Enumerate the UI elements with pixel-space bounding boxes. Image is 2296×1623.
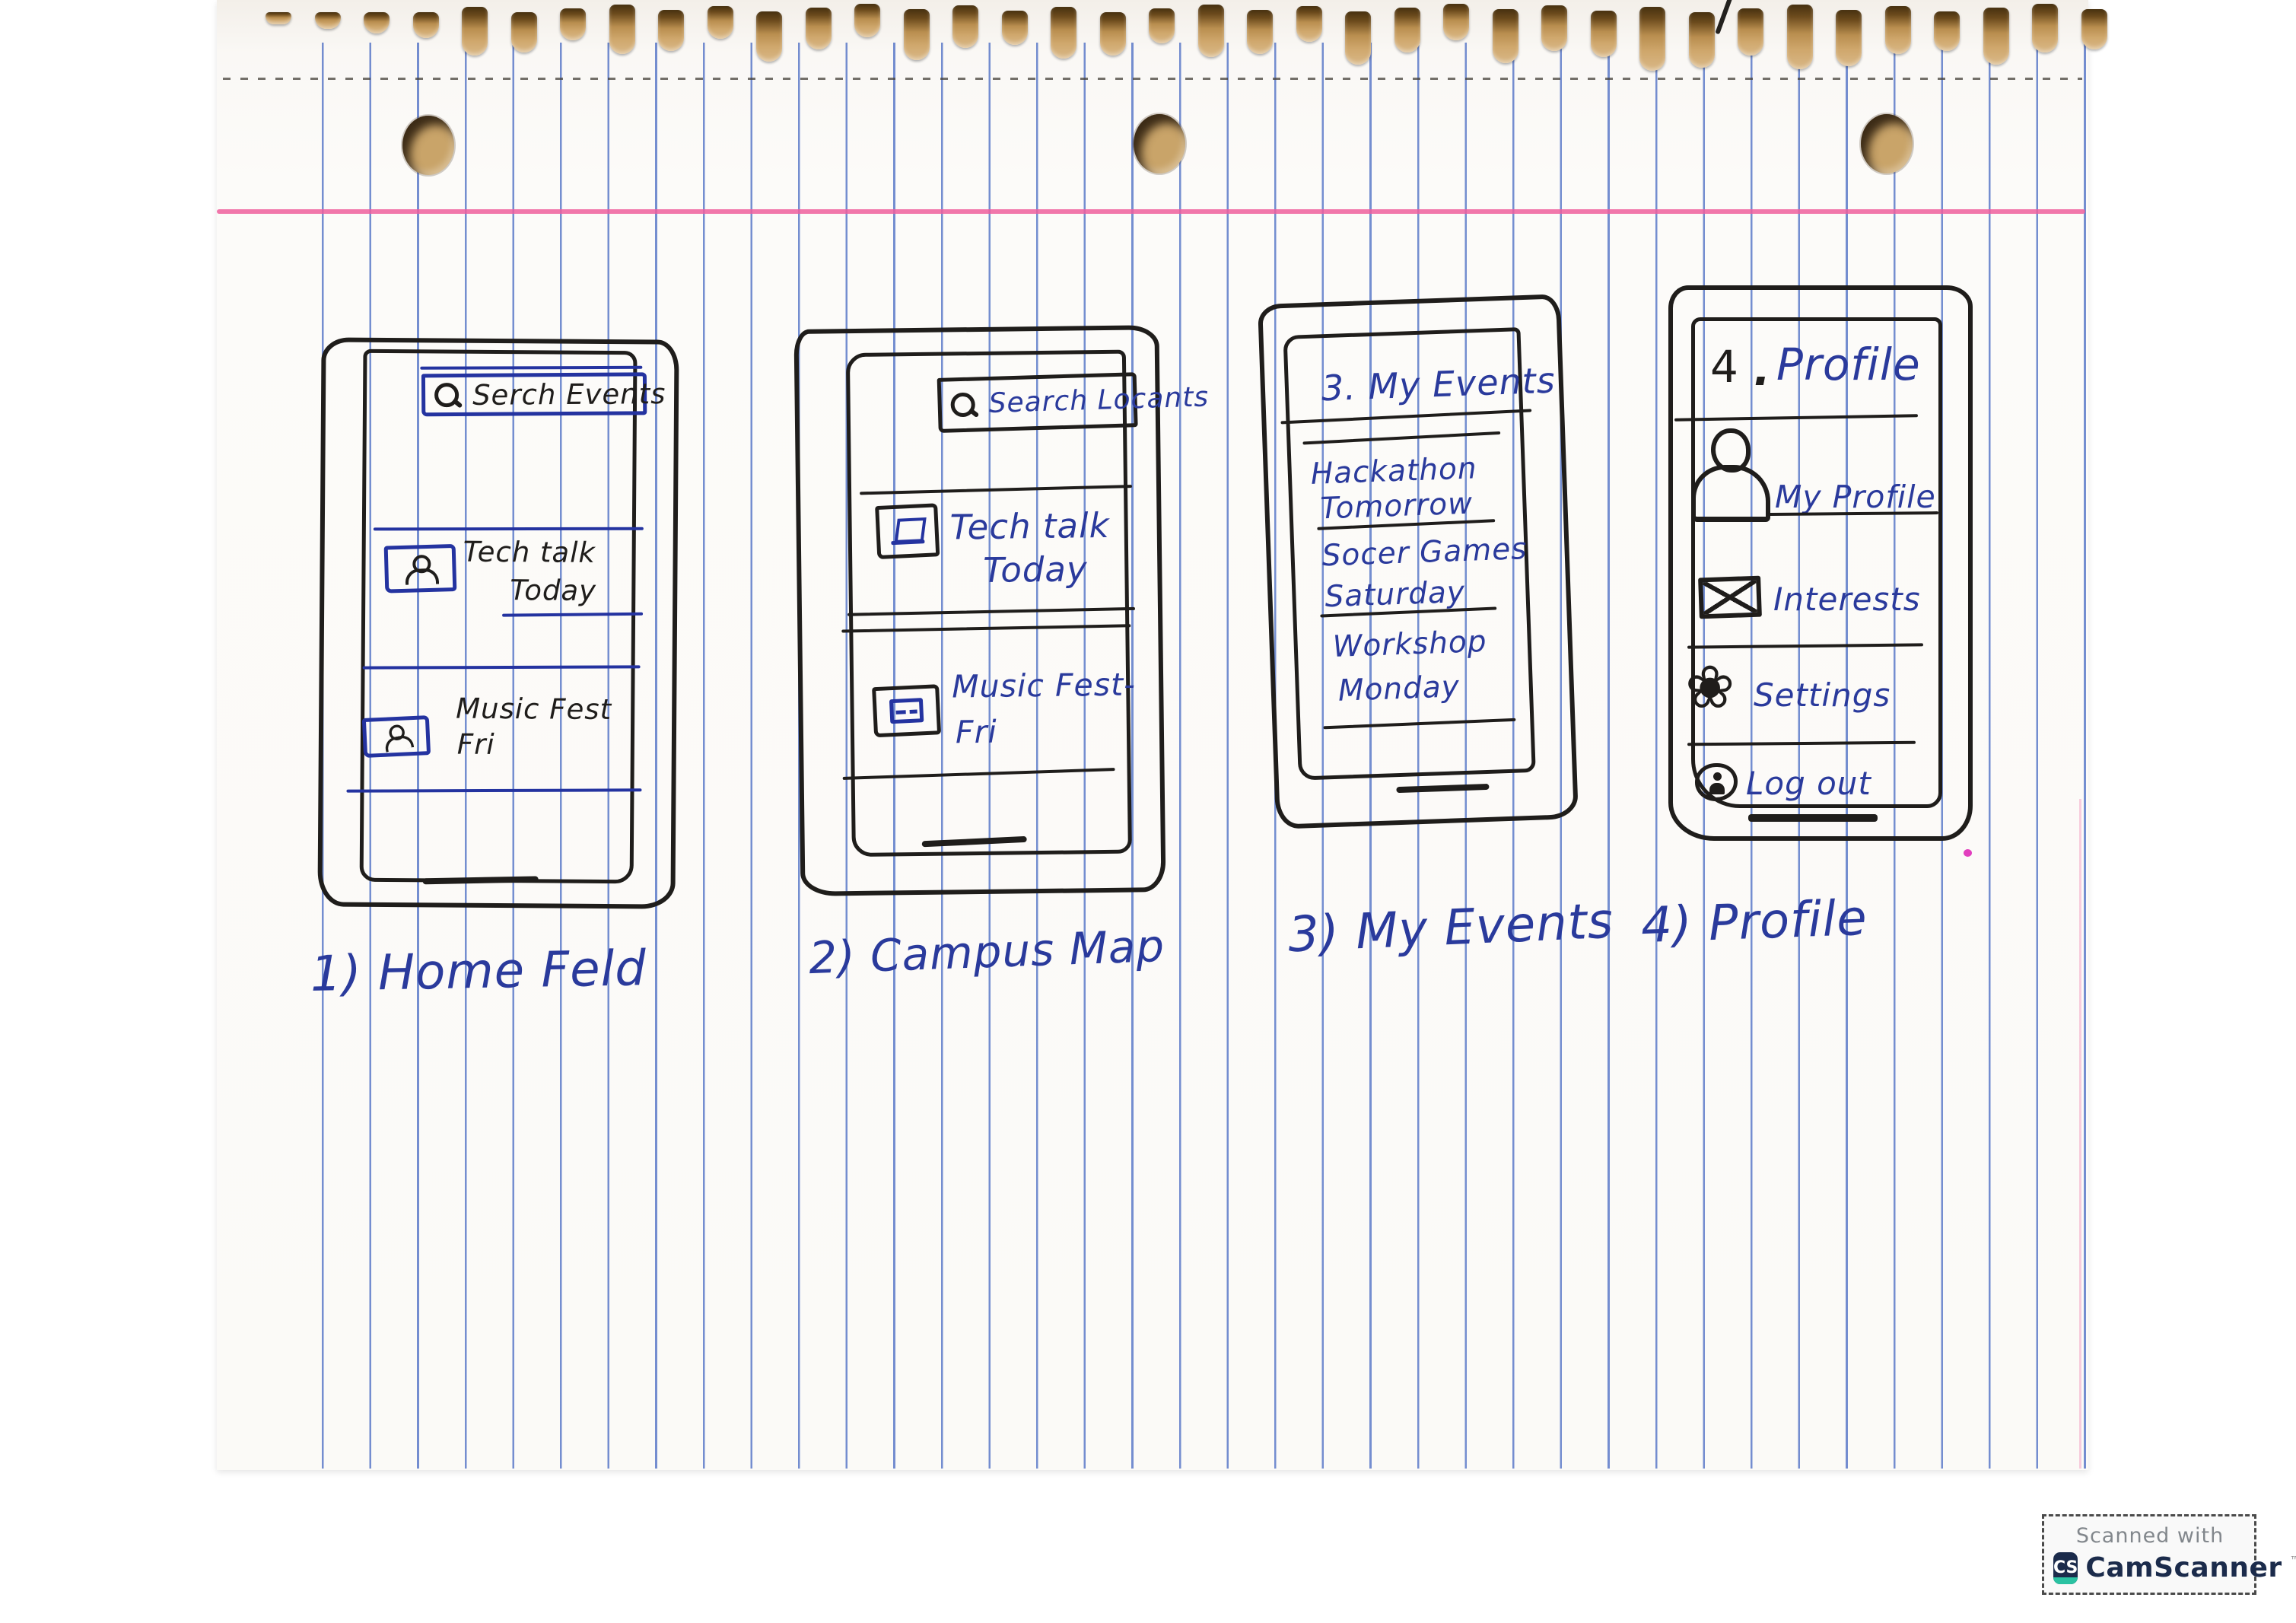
- spiral-hole: [413, 12, 439, 38]
- wireframe-phone-my-events: 3. My Events Hackathon Tomorrow Socer Ga…: [1258, 294, 1579, 829]
- camscanner-logo-text: CS: [2053, 1558, 2078, 1577]
- spiral-hole: [266, 12, 291, 24]
- magnifier-icon: [434, 381, 462, 409]
- person-photo-icon: [381, 723, 411, 750]
- spiral-hole: [1689, 12, 1715, 68]
- spiral-hole: [462, 7, 488, 56]
- caption-my-events: 3) My Events: [1287, 897, 1615, 960]
- pink-ink-dot: [1964, 849, 1972, 857]
- home-indicator: [1748, 814, 1878, 822]
- punch-hole: [1861, 114, 1913, 173]
- spiral-hole: [1198, 5, 1224, 57]
- envelope-icon: [1698, 576, 1762, 619]
- caption-campus-map: 2) Campus Map: [808, 924, 1165, 980]
- spiral-hole: [1934, 11, 1960, 51]
- menu-label: Log out: [1746, 768, 1871, 800]
- image-icon: [889, 698, 924, 724]
- spiral-hole: [609, 5, 635, 54]
- punch-hole: [1134, 114, 1185, 173]
- spiral-hole: [1394, 8, 1420, 53]
- spiral-hole: [511, 12, 537, 53]
- search-bar: Search Locants: [937, 372, 1138, 433]
- event-subtitle: Fri: [956, 717, 997, 749]
- phone-screen: [360, 349, 638, 883]
- camscanner-app-name: CamScanner: [2085, 1552, 2282, 1583]
- event-title: Socer Games: [1321, 534, 1528, 571]
- wireframe-phone-profile: 4 . Profile My Profile Interests ❀ Setti…: [1668, 285, 1973, 841]
- spiral-hole: [658, 10, 684, 51]
- spiral-hole: [1639, 7, 1665, 71]
- scanned-notebook-page: Serch Events Tech talk Today Music Fest …: [0, 0, 2296, 1623]
- screen-title: 3. My Events: [1321, 363, 1556, 406]
- event-when: Tomorrow: [1320, 488, 1474, 523]
- screen-title-number: 4: [1710, 345, 1739, 389]
- spiral-hole: [1983, 8, 2009, 65]
- menu-label: Interests: [1773, 584, 1921, 616]
- wireframe-phone-campus-map: Search Locants Tech talk Today Music Fes…: [793, 325, 1165, 896]
- spiral-hole: [2081, 9, 2107, 49]
- event-title: Music Fest: [456, 695, 612, 724]
- spiral-hole: [1443, 4, 1469, 40]
- spiral-hole: [1787, 5, 1813, 69]
- right-edge-margin-line: [2079, 799, 2081, 1469]
- spiral-hole: [315, 12, 341, 29]
- event-when: Saturday: [1324, 578, 1466, 612]
- spiral-hole: [1149, 8, 1175, 43]
- spiral-hole: [1591, 11, 1617, 57]
- screen-title: Profile: [1776, 342, 1921, 387]
- event-title: Music Fest-: [952, 670, 1136, 703]
- trademark-symbol: ™: [2290, 1554, 2296, 1567]
- spiral-hole: [2032, 4, 2058, 53]
- spiral-hole: [1836, 10, 1862, 66]
- event-title: Workshop: [1332, 627, 1487, 662]
- spiral-hole: [560, 8, 586, 40]
- punch-hole: [402, 116, 454, 175]
- event-subtitle: Today: [983, 552, 1088, 587]
- watermark-text: Scanned with: [2053, 1524, 2247, 1548]
- spiral-hole: [1247, 10, 1273, 54]
- spiral-hole: [1002, 11, 1028, 45]
- event-title: Tech talk: [949, 508, 1110, 545]
- camscanner-watermark: Scanned with CS CamScanner ™: [2042, 1514, 2256, 1595]
- spiral-hole: [1100, 12, 1126, 56]
- spiral-hole: [1885, 6, 1911, 54]
- spiral-hole: [904, 9, 930, 60]
- spiral-hole: [1738, 8, 1763, 56]
- spiral-hole: [708, 6, 733, 39]
- search-bar: Serch Events: [421, 372, 647, 416]
- screen-title-dot: .: [1754, 348, 1771, 392]
- event-when: Monday: [1337, 672, 1460, 706]
- spiral-hole: [1051, 7, 1076, 59]
- margin-line: [217, 209, 2085, 214]
- spiral-hole: [952, 5, 978, 48]
- caption-profile: 4) Profile: [1640, 894, 1868, 950]
- spiral-hole: [364, 12, 390, 33]
- wireframe-phone-home-feed: Serch Events Tech talk Today Music Fest …: [317, 337, 679, 909]
- event-subtitle: Fri: [457, 730, 495, 759]
- menu-label: My Profile: [1775, 482, 1936, 513]
- spiral-hole: [1541, 5, 1567, 51]
- spiral-hole: [854, 4, 880, 37]
- spiral-hole: [756, 11, 782, 62]
- person-circle-icon: [1695, 763, 1738, 801]
- laptop-icon: [890, 517, 925, 545]
- spiral-hole: [1345, 11, 1371, 65]
- search-label: Serch Events: [472, 380, 666, 409]
- event-title: Tech talk: [463, 538, 596, 567]
- person-photo-icon: [405, 555, 436, 583]
- event-subtitle: Today: [510, 576, 596, 605]
- event-card-thumbnail: [384, 544, 457, 594]
- flower-gear-icon: ❀: [1685, 658, 1735, 718]
- event-card-thumbnail: [875, 503, 940, 559]
- magnifier-icon: [950, 390, 978, 418]
- card-divider: [374, 527, 644, 531]
- event-card-thumbnail: [362, 715, 431, 758]
- notebook-paper: Serch Events Tech talk Today Music Fest …: [217, 0, 2088, 1470]
- spiral-hole: [1493, 9, 1518, 63]
- camscanner-logo-icon: CS: [2053, 1552, 2078, 1584]
- spiral-holes: [217, 0, 2088, 84]
- person-icon: [1691, 428, 1767, 518]
- event-card-thumbnail: [872, 684, 941, 737]
- search-label: Search Locants: [988, 383, 1209, 418]
- spiral-hole: [1296, 6, 1322, 42]
- event-title: Hackathon: [1310, 453, 1477, 489]
- caption-home-feed: 1) Home Feld: [310, 944, 647, 999]
- menu-label: Settings: [1754, 679, 1891, 711]
- spiral-hole: [806, 8, 832, 49]
